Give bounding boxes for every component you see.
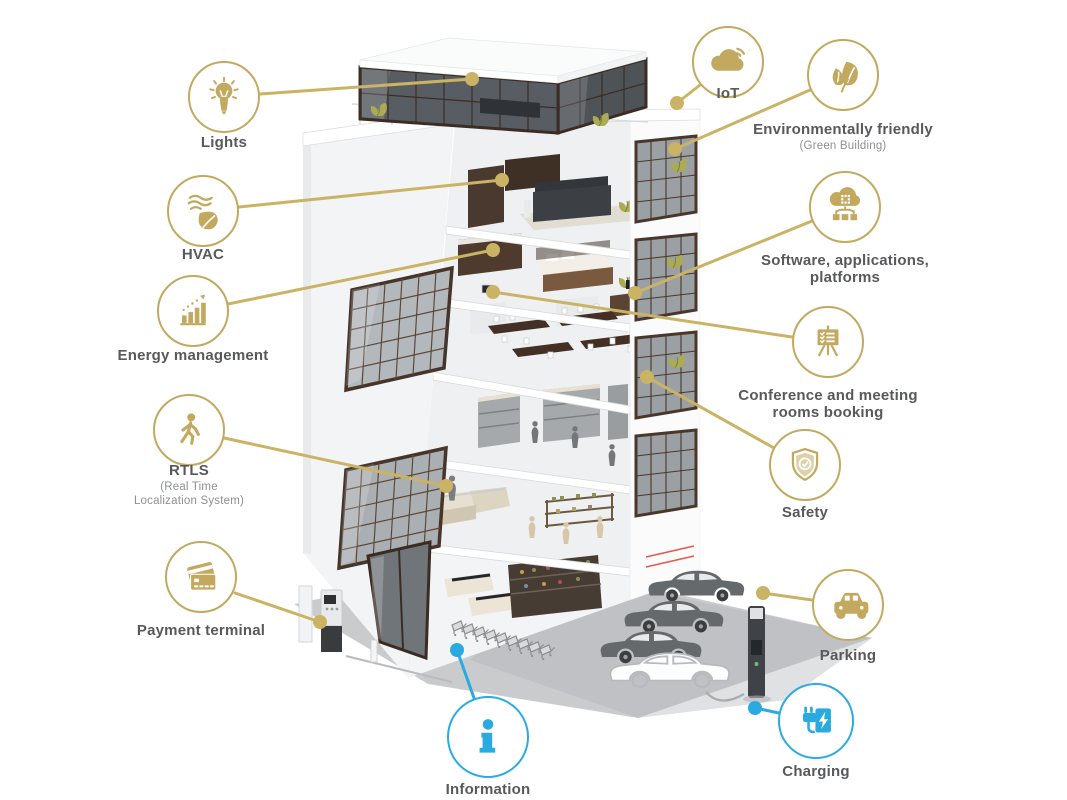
- connector-hvac: [239, 173, 509, 207]
- shield-check-icon: [783, 443, 827, 487]
- software-circle: [809, 171, 881, 243]
- rtls-sublabel: (Real Time Localization System): [129, 480, 249, 509]
- presentation-board-icon: [806, 320, 850, 364]
- parking-circle: [812, 569, 884, 641]
- lightbulb-icon: [202, 75, 246, 119]
- walking-person-icon: [167, 408, 211, 452]
- information-label: Information: [408, 781, 568, 798]
- rtls-circle: [153, 394, 225, 466]
- bar-chart-icon: [171, 289, 215, 333]
- iot-label: IoT: [688, 85, 768, 102]
- energy-circle: [157, 275, 229, 347]
- connector-lights: [260, 72, 479, 94]
- connector-charging: [748, 701, 779, 715]
- connector-parking: [756, 586, 812, 600]
- payment-circle: [165, 541, 237, 613]
- connector-information: [450, 643, 474, 698]
- hvac-circle: [167, 175, 239, 247]
- environment-circle: [807, 39, 879, 111]
- leaves-icon: [821, 53, 865, 97]
- cloud-wifi-icon: [706, 40, 750, 84]
- charging-label: Charging: [766, 763, 866, 780]
- smart-building-infographic: Lights HVAC Energ: [0, 0, 1067, 800]
- info-icon: [464, 713, 512, 761]
- parking-label: Parking: [798, 647, 898, 664]
- environment-label: Environmentally friendly: [743, 121, 943, 138]
- leaf-wind-icon: [181, 189, 225, 233]
- conference-circle: [792, 306, 864, 378]
- energy-label: Energy management: [73, 347, 313, 364]
- safety-circle: [769, 429, 841, 501]
- conference-label: Conference and meeting rooms booking: [728, 387, 928, 422]
- lights-label: Lights: [144, 134, 304, 151]
- charging-circle: [778, 683, 854, 759]
- software-label: Software, applications, platforms: [740, 252, 950, 287]
- information-circle: [447, 696, 529, 778]
- safety-label: Safety: [755, 504, 855, 521]
- lights-circle: [188, 61, 260, 133]
- environment-sublabel: (Green Building): [763, 139, 923, 153]
- credit-cards-icon: [179, 555, 223, 599]
- rtls-label: RTLS: [119, 462, 259, 479]
- payment-label: Payment terminal: [101, 622, 301, 639]
- hvac-label: HVAC: [123, 246, 283, 263]
- cloud-network-icon: [823, 185, 867, 229]
- ev-plug-icon: [793, 698, 839, 744]
- car-icon: [826, 583, 870, 627]
